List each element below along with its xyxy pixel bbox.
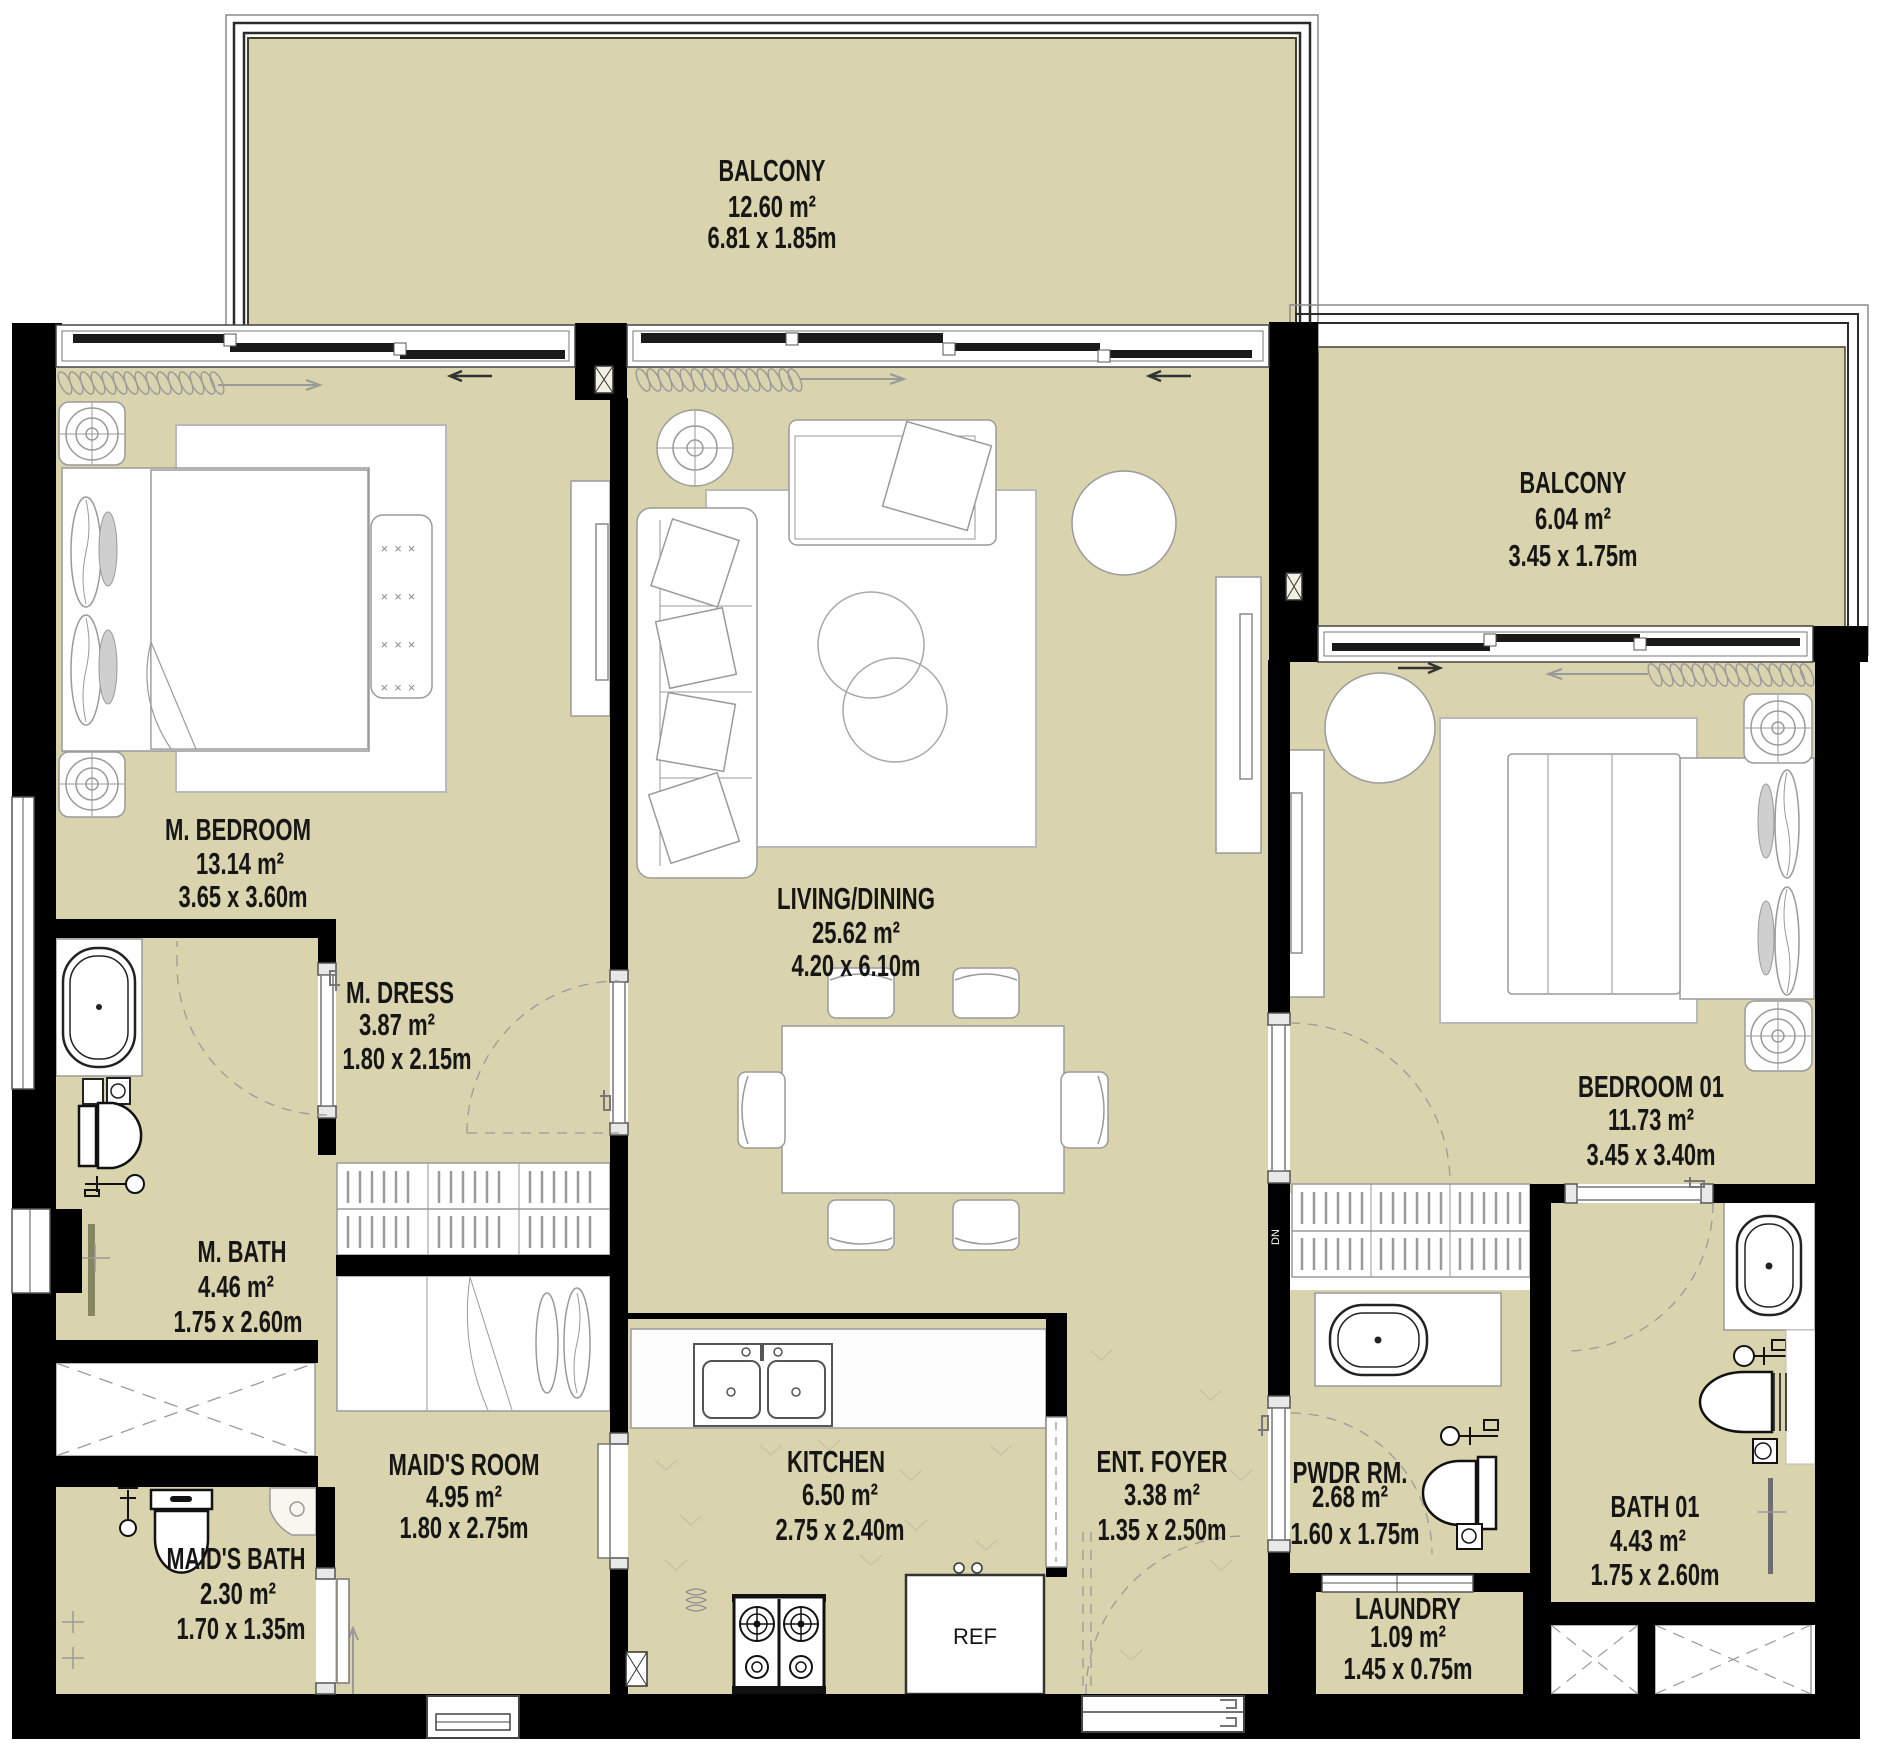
svg-text:1.45 x 0.75m: 1.45 x 0.75m [1344,1651,1473,1686]
svg-text:REF: REF [953,1624,997,1649]
svg-text:1.80 x 2.75m: 1.80 x 2.75m [400,1510,529,1545]
svg-text:4.46 m²: 4.46 m² [198,1269,274,1304]
svg-text:2.30 m²: 2.30 m² [200,1576,276,1611]
svg-text:1.80 x 2.15m: 1.80 x 2.15m [343,1041,472,1076]
svg-text:DN: DN [1270,1229,1282,1245]
svg-text:BATH 01: BATH 01 [1611,1489,1700,1524]
svg-text:M. DRESS: M. DRESS [346,975,454,1010]
svg-text:12.60 m²: 12.60 m² [728,189,816,224]
svg-text:6.81 x 1.85m: 6.81 x 1.85m [708,220,837,255]
svg-text:2.75 x 2.40m: 2.75 x 2.40m [776,1512,905,1547]
svg-text:KITCHEN: KITCHEN [787,1444,885,1479]
svg-text:1.09 m²: 1.09 m² [1370,1619,1446,1654]
svg-text:×××: ××× [381,637,422,652]
svg-text:1.60 x 1.75m: 1.60 x 1.75m [1291,1516,1420,1551]
svg-text:×××: ××× [381,680,422,695]
svg-text:3.45 x 1.75m: 3.45 x 1.75m [1509,538,1638,573]
svg-text:BALCONY: BALCONY [719,153,826,188]
svg-text:MAID'S ROOM: MAID'S ROOM [389,1447,540,1482]
svg-text:4.95 m²: 4.95 m² [426,1479,502,1514]
svg-text:1.70 x 1.35m: 1.70 x 1.35m [177,1611,306,1646]
svg-text:BALCONY: BALCONY [1520,465,1627,500]
svg-text:3.45 x 3.40m: 3.45 x 3.40m [1587,1137,1716,1172]
svg-text:MAID'S BATH: MAID'S BATH [167,1541,306,1576]
svg-text:6.04 m²: 6.04 m² [1535,501,1611,536]
svg-text:ENT. FOYER: ENT. FOYER [1097,1444,1228,1479]
svg-text:1.35 x 2.50m: 1.35 x 2.50m [1098,1512,1227,1547]
svg-text:2.68 m²: 2.68 m² [1312,1479,1388,1514]
svg-text:3.87 m²: 3.87 m² [359,1007,435,1042]
svg-text:M. BEDROOM: M. BEDROOM [165,812,311,847]
svg-text:4.20 x 6.10m: 4.20 x 6.10m [792,948,921,983]
svg-text:BEDROOM 01: BEDROOM 01 [1578,1069,1724,1104]
svg-text:1.75 x 2.60m: 1.75 x 2.60m [1591,1557,1720,1592]
svg-text:6.50 m²: 6.50 m² [802,1477,878,1512]
svg-text:3.65 x 3.60m: 3.65 x 3.60m [179,879,308,914]
svg-text:3.38 m²: 3.38 m² [1124,1477,1200,1512]
svg-text:4.43 m²: 4.43 m² [1610,1523,1686,1558]
svg-text:M. BATH: M. BATH [198,1234,287,1269]
svg-text:25.62 m²: 25.62 m² [812,915,900,950]
svg-text:11.73 m²: 11.73 m² [1608,1102,1694,1137]
svg-text:1.75 x 2.60m: 1.75 x 2.60m [174,1304,303,1339]
svg-text:×××: ××× [381,589,422,604]
svg-text:LIVING/DINING: LIVING/DINING [777,881,935,916]
svg-text:×××: ××× [381,541,422,556]
svg-text:13.14 m²: 13.14 m² [196,846,284,881]
